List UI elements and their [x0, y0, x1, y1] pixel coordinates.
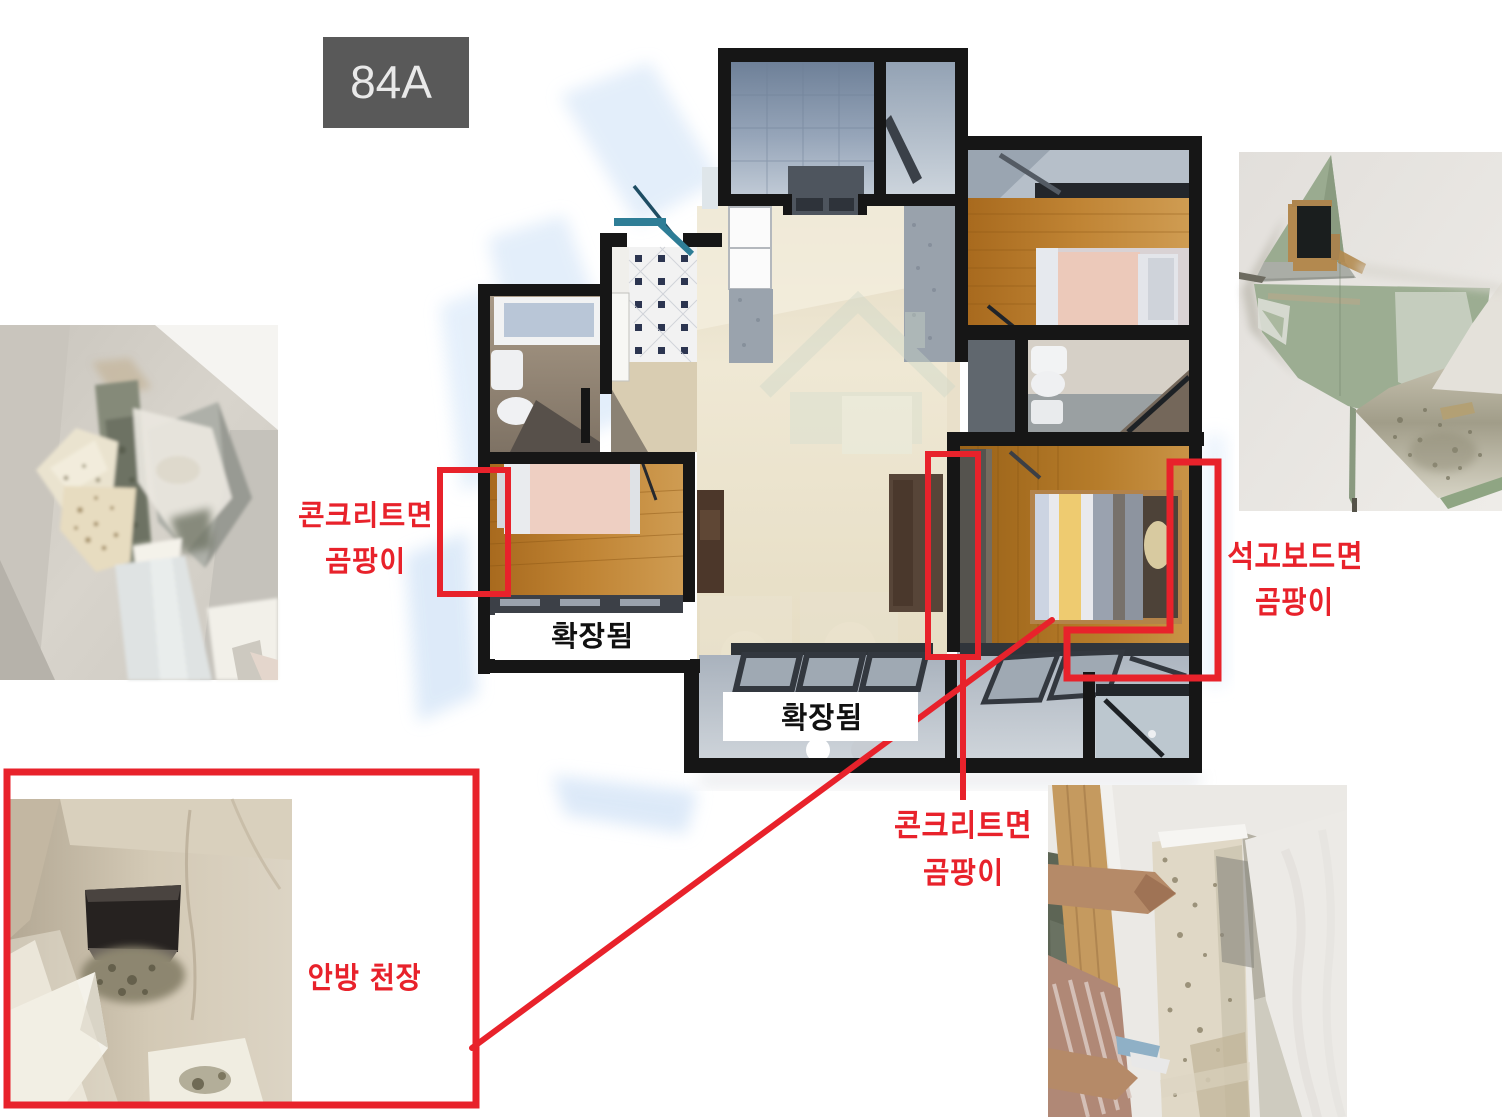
svg-text:84A: 84A [350, 56, 432, 108]
